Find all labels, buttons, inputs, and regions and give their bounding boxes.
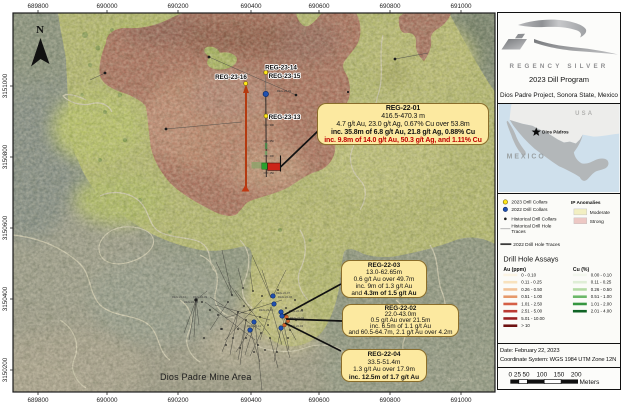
svg-text:690800: 690800 (379, 3, 401, 10)
svg-text:USA: USA (575, 111, 594, 117)
svg-text:0.00 - 0.10: 0.00 - 0.10 (591, 272, 612, 277)
svg-text:REGENCY SILVER: REGENCY SILVER (510, 63, 609, 70)
svg-text:MEXICO: MEXICO (507, 153, 546, 160)
svg-text:REG-23-16: REG-23-16 (215, 74, 247, 81)
svg-text:3150600: 3150600 (2, 215, 9, 240)
svg-text:REG-23-11: REG-23-11 (247, 324, 261, 328)
svg-text:0.51 - 1.00: 0.51 - 1.00 (591, 294, 612, 299)
svg-text:N: N (36, 24, 44, 36)
svg-text:0 - 0.10: 0 - 0.10 (521, 272, 536, 277)
svg-text:5.01 - 10.00: 5.01 - 10.00 (521, 316, 545, 321)
svg-text:450: 450 (270, 171, 275, 175)
svg-text:0: 0 (509, 372, 513, 379)
svg-text:200: 200 (571, 372, 582, 379)
svg-text:2022 Drill Collars: 2022 Drill Collars (511, 207, 548, 213)
svg-text:100: 100 (536, 372, 547, 379)
svg-text:REG-23-14: REG-23-14 (265, 65, 297, 72)
svg-text:3151000: 3151000 (2, 73, 9, 98)
svg-text:> 10: > 10 (521, 323, 530, 328)
svg-text:REG-23-12: REG-23-12 (259, 308, 274, 312)
svg-text:689800: 689800 (27, 3, 49, 10)
svg-text:400: 400 (270, 154, 275, 158)
svg-text:3150400: 3150400 (2, 286, 9, 311)
svg-text:0.51 - 1.00: 0.51 - 1.00 (521, 294, 542, 299)
svg-text:Moderate: Moderate (590, 210, 610, 216)
svg-text:150: 150 (554, 372, 565, 379)
svg-text:690000: 690000 (96, 3, 118, 10)
svg-text:Dios Padre Project, Sonora Sta: Dios Padre Project, Sonora State, Mexico (500, 92, 618, 99)
svg-text:Traces: Traces (511, 229, 526, 235)
svg-text:Dios Pádros: Dios Pádros (542, 130, 569, 135)
svg-text:691000: 691000 (450, 397, 472, 404)
svg-text:25: 25 (514, 372, 522, 379)
svg-text:690600: 690600 (308, 397, 330, 404)
svg-text:3150800: 3150800 (2, 144, 9, 169)
svg-text:2.01 - 4.00: 2.01 - 4.00 (591, 309, 612, 314)
svg-text:0.11 - 0.25: 0.11 - 0.25 (521, 280, 542, 285)
svg-text:REG-22-01: REG-22-01 (277, 89, 292, 93)
svg-text:350: 350 (270, 139, 275, 143)
svg-text:Strong: Strong (590, 219, 604, 225)
svg-text:Meters: Meters (580, 379, 601, 386)
svg-text:0.11 - 0.25: 0.11 - 0.25 (591, 280, 612, 285)
svg-text:0.26 - 0.50: 0.26 - 0.50 (521, 287, 542, 292)
svg-text:690000: 690000 (96, 397, 118, 404)
svg-text:3150200: 3150200 (2, 357, 9, 382)
svg-text:REG-22-10: REG-22-10 (172, 295, 187, 299)
svg-text:Drill Hole Assays: Drill Hole Assays (503, 255, 558, 264)
svg-text:REG-22-08: REG-22-08 (184, 300, 199, 304)
svg-text:50: 50 (523, 372, 531, 379)
svg-text:1.01 - 2.50: 1.01 - 2.50 (521, 301, 542, 306)
svg-text:Cu (%): Cu (%) (573, 267, 590, 273)
svg-text:2022 Drill Hole Traces: 2022 Drill Hole Traces (513, 242, 560, 248)
svg-text:691000: 691000 (450, 3, 472, 10)
svg-text:300: 300 (270, 123, 275, 127)
svg-text:Titus Mining: Titus Mining (448, 377, 473, 382)
svg-text:1.01 - 2.00: 1.01 - 2.00 (591, 301, 612, 306)
svg-text:REG-22-09: REG-22-09 (193, 295, 208, 299)
svg-text:Historical Drill Hole: Historical Drill Hole (511, 223, 551, 229)
svg-text:0.26 - 0.50: 0.26 - 0.50 (591, 287, 612, 292)
svg-text:2023 Drill Collars: 2023 Drill Collars (511, 200, 548, 206)
svg-text:Historical Drill Collars: Historical Drill Collars (511, 217, 557, 223)
svg-text:690800: 690800 (379, 397, 401, 404)
svg-text:2023 Dill Program: 2023 Dill Program (529, 75, 589, 84)
svg-text:REG-23-13: REG-23-13 (269, 114, 301, 121)
svg-text:REG-22-06: REG-22-06 (278, 295, 293, 299)
svg-text:REG-23-15: REG-23-15 (269, 73, 301, 80)
svg-text:690600: 690600 (308, 3, 330, 10)
svg-text:690400: 690400 (240, 3, 262, 10)
svg-text:Dios Padre Mine Area: Dios Padre Mine Area (160, 372, 252, 382)
svg-text:IP Anomalies: IP Anomalies (571, 200, 601, 206)
svg-text:2.51 - 5.00: 2.51 - 5.00 (521, 309, 542, 314)
svg-text:689800: 689800 (27, 397, 49, 404)
svg-text:690400: 690400 (240, 397, 262, 404)
svg-text:690200: 690200 (167, 3, 189, 10)
svg-text:690200: 690200 (167, 397, 189, 404)
